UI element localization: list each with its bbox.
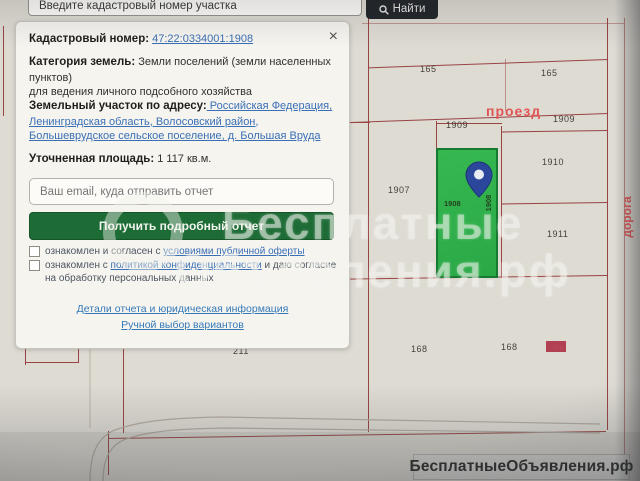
- parcel-label: 165: [420, 64, 437, 74]
- cadastral-number-link[interactable]: 47:22:0334001:1908: [152, 33, 253, 45]
- category-extra: для ведения личного подсобного хозяйства: [29, 85, 334, 100]
- parcel-label: 1907: [388, 185, 410, 195]
- parcel-label: 165: [541, 68, 558, 78]
- email-field[interactable]: [29, 178, 334, 205]
- privacy-text-1: ознакомлен с: [45, 260, 111, 271]
- parcel-label: 1910: [542, 157, 564, 167]
- cadastral-number-row: Кадастровый номер: 47:22:0334001:1908: [29, 32, 334, 48]
- find-button[interactable]: Найти: [366, 0, 438, 19]
- parcel-label: 1909: [553, 114, 575, 124]
- area-row: Уточненная площадь: 1 117 кв.м.: [29, 152, 334, 168]
- parcel-label: 168: [411, 344, 428, 354]
- offer-checkbox-text: ознакомлен и согласен с условиями публич…: [45, 245, 305, 258]
- site-logo: БесплатныеОбъявления.рф: [413, 454, 630, 480]
- screen: 16516519091909191019071911211168168 1908…: [0, 0, 640, 481]
- privacy-checkbox-row: ознакомлен с политикой конфиденциальност…: [29, 259, 337, 285]
- address-label: Земельный участок по адресу:: [29, 100, 207, 112]
- offer-text: ознакомлен и согласен с: [45, 246, 163, 257]
- offer-checkbox-row: ознакомлен и согласен с условиями публич…: [29, 245, 337, 258]
- offer-checkbox[interactable]: [29, 246, 40, 257]
- privacy-checkbox-text: ознакомлен с политикой конфиденциальност…: [45, 259, 337, 285]
- privacy-link[interactable]: политикой конфиденциальности: [111, 260, 262, 271]
- area-value: 1 117 кв.м.: [154, 153, 211, 165]
- cadastral-number-label: Кадастровый номер:: [29, 33, 149, 45]
- privacy-checkbox[interactable]: [29, 260, 40, 271]
- search-input[interactable]: [28, 0, 362, 16]
- parcel-info-panel: Кадастровый номер: 47:22:0334001:1908 × …: [15, 21, 350, 349]
- parcel-label: 1909: [446, 120, 468, 130]
- report-details-link[interactable]: Детали отчета и юридическая информация: [16, 303, 349, 315]
- get-report-button[interactable]: Получить подробный отчет: [29, 212, 334, 240]
- offer-link[interactable]: условиями публичной оферты: [163, 246, 304, 257]
- parcel-label: 1911: [547, 229, 568, 239]
- search-icon: [379, 5, 389, 15]
- selected-parcel-number: 1908: [444, 199, 461, 208]
- road-label-proezd: проезд: [486, 103, 541, 119]
- location-pin-icon[interactable]: [464, 161, 494, 199]
- address-row: Земельный участок по адресу: Российская …: [29, 99, 334, 144]
- parcel-label: 168: [501, 342, 518, 352]
- manual-options-link[interactable]: Ручной выбор вариантов: [16, 319, 349, 331]
- road-label-doroga: дорога: [620, 182, 634, 252]
- area-label: Уточненная площадь:: [29, 153, 154, 165]
- find-button-label: Найти: [393, 3, 426, 15]
- category-label: Категория земель:: [29, 56, 135, 68]
- close-icon[interactable]: ×: [329, 29, 338, 45]
- red-parcel-label: 879: [553, 346, 563, 352]
- category-row: Категория земель: Земли поселений (земли…: [29, 55, 334, 100]
